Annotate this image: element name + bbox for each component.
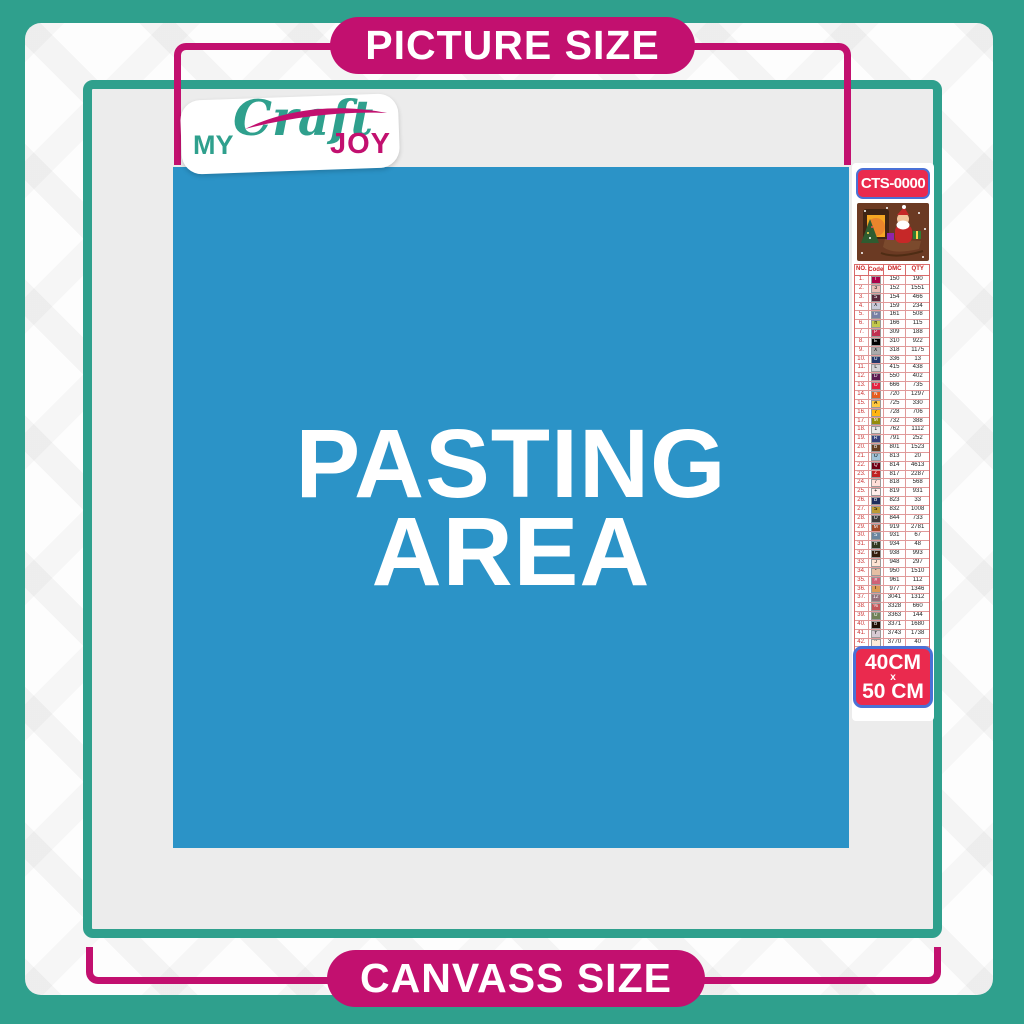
table-cell: 977 bbox=[884, 586, 907, 594]
table-cell: 144 bbox=[906, 612, 929, 620]
table-row: 12.D550402 bbox=[855, 373, 929, 382]
color-swatch: 7 bbox=[871, 409, 881, 417]
table-row: 10.U33613 bbox=[855, 356, 929, 365]
color-swatch: B bbox=[871, 621, 881, 629]
table-cell: 4613 bbox=[906, 462, 929, 470]
table-row: 17.M732388 bbox=[855, 418, 929, 427]
table-cell: 39. bbox=[855, 612, 869, 620]
table-cell: 817 bbox=[884, 471, 907, 479]
table-row: 25.+819931 bbox=[855, 488, 929, 497]
table-cell: 330 bbox=[906, 400, 929, 408]
table-row: 21.O81320 bbox=[855, 453, 929, 462]
table-cell: 30. bbox=[855, 532, 869, 540]
table-cell: 318 bbox=[884, 347, 907, 355]
table-cell: O bbox=[869, 453, 884, 461]
table-cell: A bbox=[869, 400, 884, 408]
table-cell: 7. bbox=[855, 329, 869, 337]
table-cell: 819 bbox=[884, 488, 907, 496]
table-cell: 29. bbox=[855, 524, 869, 532]
table-cell: 15. bbox=[855, 400, 869, 408]
color-swatch: X bbox=[871, 303, 881, 311]
color-swatch: 3 bbox=[871, 285, 881, 293]
table-cell: 568 bbox=[906, 479, 929, 487]
table-cell: 993 bbox=[906, 550, 929, 558]
color-swatch: B bbox=[871, 444, 881, 452]
table-cell: * bbox=[869, 568, 884, 576]
color-swatch: M bbox=[871, 524, 881, 532]
table-cell: 801 bbox=[884, 444, 907, 452]
table-cell: 818 bbox=[884, 479, 907, 487]
color-swatch: L bbox=[871, 364, 881, 372]
table-row: 32.G938993 bbox=[855, 550, 929, 559]
table-row: 22.Q8144613 bbox=[855, 462, 929, 471]
table-cell: % bbox=[869, 603, 884, 611]
table-cell: 3041 bbox=[884, 594, 907, 602]
table-cell: 1680 bbox=[906, 621, 929, 629]
table-cell: 948 bbox=[884, 559, 907, 567]
table-cell: 813 bbox=[884, 453, 907, 461]
color-swatch: H bbox=[871, 541, 881, 549]
color-swatch: + bbox=[871, 488, 881, 496]
table-cell: 814 bbox=[884, 462, 907, 470]
table-cell: 115 bbox=[906, 320, 929, 328]
table-row: 33.J948297 bbox=[855, 559, 929, 568]
table-cell: 466 bbox=[906, 294, 929, 302]
table-row: 7.P309188 bbox=[855, 329, 929, 338]
column-header: QTY bbox=[906, 265, 929, 275]
table-row: 23.Z8172287 bbox=[855, 471, 929, 480]
canvass-size-banner: CANVASS SIZE bbox=[327, 950, 705, 1007]
table-cell: 7 bbox=[869, 479, 884, 487]
color-swatch: S bbox=[871, 532, 881, 540]
table-cell: 190 bbox=[906, 276, 929, 284]
table-cell: S bbox=[869, 506, 884, 514]
pasting-area-label-line2: AREA bbox=[372, 508, 651, 596]
table-row: 31.H93448 bbox=[855, 541, 929, 550]
table-cell: 3371 bbox=[884, 621, 907, 629]
table-cell: 706 bbox=[906, 409, 929, 417]
table-cell: 3 bbox=[869, 285, 884, 293]
color-swatch: R bbox=[871, 435, 881, 443]
table-cell: 32. bbox=[855, 550, 869, 558]
table-cell: 938 bbox=[884, 550, 907, 558]
table-cell: 844 bbox=[884, 515, 907, 523]
table-row: 19.R791252 bbox=[855, 435, 929, 444]
table-cell: Y bbox=[869, 630, 884, 638]
brand-logo: MY Craft JOY bbox=[181, 97, 399, 171]
table-cell: 10. bbox=[855, 356, 869, 364]
table-cell: B bbox=[869, 621, 884, 629]
table-cell: X bbox=[869, 347, 884, 355]
color-swatch: 1 bbox=[871, 426, 881, 434]
product-code-label: CTS-0000 bbox=[861, 175, 925, 192]
table-cell: 823 bbox=[884, 497, 907, 505]
table-cell: 150 bbox=[884, 276, 907, 284]
color-swatch: X bbox=[871, 347, 881, 355]
table-cell: Z bbox=[869, 471, 884, 479]
table-cell: X bbox=[869, 303, 884, 311]
table-cell: 34. bbox=[855, 568, 869, 576]
canvas-size-badge: 40CM x 50 CM bbox=[853, 646, 933, 708]
color-swatch: G bbox=[871, 311, 881, 319]
pasting-area: PASTING AREA bbox=[173, 167, 849, 848]
table-cell: 931 bbox=[906, 488, 929, 496]
table-cell: 919 bbox=[884, 524, 907, 532]
color-swatch: 12 bbox=[871, 594, 881, 602]
table-cell: 12. bbox=[855, 373, 869, 381]
table-row: 24.7818568 bbox=[855, 479, 929, 488]
table-cell: 922 bbox=[906, 338, 929, 346]
table-cell: 4. bbox=[855, 303, 869, 311]
table-cell: 112 bbox=[906, 577, 929, 585]
table-cell: 13. bbox=[855, 382, 869, 390]
table-cell: Q bbox=[869, 462, 884, 470]
table-cell: G bbox=[869, 550, 884, 558]
table-cell: B bbox=[869, 497, 884, 505]
column-header: DMC bbox=[884, 265, 907, 275]
table-cell: 660 bbox=[906, 603, 929, 611]
table-row: 38.%3328660 bbox=[855, 603, 929, 612]
table-cell: 1312 bbox=[906, 594, 929, 602]
table-cell: 1175 bbox=[906, 347, 929, 355]
color-swatch: T bbox=[871, 276, 881, 284]
color-swatch: O bbox=[871, 453, 881, 461]
table-cell: 16. bbox=[855, 409, 869, 417]
table-cell: 19. bbox=[855, 435, 869, 443]
table-cell: 9. bbox=[855, 347, 869, 355]
table-row: 9.X3181175 bbox=[855, 347, 929, 356]
table-cell: 27. bbox=[855, 506, 869, 514]
table-cell: H bbox=[869, 541, 884, 549]
table-row: 4.X159234 bbox=[855, 303, 929, 312]
table-row: 36.T9771346 bbox=[855, 586, 929, 595]
color-swatch: % bbox=[871, 603, 881, 611]
table-cell: 3743 bbox=[884, 630, 907, 638]
size-value-width: 40CM bbox=[865, 653, 921, 673]
color-swatch: Q bbox=[871, 462, 881, 470]
table-cell: 732 bbox=[884, 418, 907, 426]
table-cell: 1297 bbox=[906, 391, 929, 399]
color-swatch: S bbox=[871, 506, 881, 514]
table-cell: 22. bbox=[855, 462, 869, 470]
table-cell: T bbox=[869, 276, 884, 284]
product-template-poster: PASTING AREA PICTURE SIZE CANVASS SIZE M… bbox=[0, 0, 1024, 1024]
table-cell: 13 bbox=[906, 356, 929, 364]
color-swatch: * bbox=[871, 568, 881, 576]
table-cell: 33 bbox=[906, 497, 929, 505]
table-row: 41.Y37431738 bbox=[855, 630, 929, 639]
table-cell: E bbox=[869, 338, 884, 346]
table-cell: 508 bbox=[906, 311, 929, 319]
table-cell: 733 bbox=[906, 515, 929, 523]
color-swatch: O bbox=[871, 515, 881, 523]
table-cell: 24. bbox=[855, 479, 869, 487]
table-cell: 152 bbox=[884, 285, 907, 293]
table-cell: 2. bbox=[855, 285, 869, 293]
table-row: 1.T150190 bbox=[855, 276, 929, 285]
color-swatch: G bbox=[871, 550, 881, 558]
table-cell: B bbox=[869, 444, 884, 452]
table-cell: 1112 bbox=[906, 426, 929, 434]
picture-size-banner-label: PICTURE SIZE bbox=[365, 22, 659, 69]
table-row: 6.h166115 bbox=[855, 320, 929, 329]
table-cell: O bbox=[869, 382, 884, 390]
table-row: 13.O666735 bbox=[855, 382, 929, 391]
color-swatch: A bbox=[871, 400, 881, 408]
table-cell: O bbox=[869, 515, 884, 523]
color-swatch: M bbox=[871, 418, 881, 426]
table-cell: 8. bbox=[855, 338, 869, 346]
table-cell: 12 bbox=[869, 594, 884, 602]
table-cell: 438 bbox=[906, 364, 929, 372]
color-swatch: T bbox=[871, 586, 881, 594]
table-row: 16.7728706 bbox=[855, 409, 929, 418]
table-cell: 1346 bbox=[906, 586, 929, 594]
table-row: 37.1230411312 bbox=[855, 594, 929, 603]
table-cell: 725 bbox=[884, 400, 907, 408]
table-cell: 3363 bbox=[884, 612, 907, 620]
table-row: 26.B82333 bbox=[855, 497, 929, 506]
table-cell: S bbox=[869, 294, 884, 302]
table-cell: 931 bbox=[884, 532, 907, 540]
table-cell: L bbox=[869, 364, 884, 372]
table-cell: 6. bbox=[855, 320, 869, 328]
color-table-body: 1.T1501902.315215513.S1544664.X1592345.G… bbox=[855, 276, 929, 701]
color-swatch: O bbox=[871, 382, 881, 390]
table-cell: 309 bbox=[884, 329, 907, 337]
table-cell: 1 bbox=[869, 426, 884, 434]
table-cell: P bbox=[869, 329, 884, 337]
table-cell: R bbox=[869, 435, 884, 443]
table-cell: + bbox=[869, 488, 884, 496]
table-row: 3.S154466 bbox=[855, 294, 929, 303]
table-cell: 38. bbox=[855, 603, 869, 611]
table-cell: 310 bbox=[884, 338, 907, 346]
table-row: 11.L415438 bbox=[855, 364, 929, 373]
color-table: NO.CodeDMCQTY 1.T1501902.315215513.S1544… bbox=[854, 264, 930, 702]
logo-word-my: MY bbox=[193, 130, 234, 161]
table-cell: 297 bbox=[906, 559, 929, 567]
table-row: 8.E310922 bbox=[855, 338, 929, 347]
table-cell: 18. bbox=[855, 426, 869, 434]
table-cell: 7 bbox=[869, 409, 884, 417]
table-cell: 48 bbox=[906, 541, 929, 549]
table-cell: 11. bbox=[855, 364, 869, 372]
table-cell: 2287 bbox=[906, 471, 929, 479]
table-cell: 31. bbox=[855, 541, 869, 549]
table-cell: 934 bbox=[884, 541, 907, 549]
table-row: 35.#961112 bbox=[855, 577, 929, 586]
table-cell: 20 bbox=[906, 453, 929, 461]
table-cell: 17. bbox=[855, 418, 869, 426]
color-swatch: J bbox=[871, 559, 881, 567]
table-cell: 188 bbox=[906, 329, 929, 337]
table-cell: 5. bbox=[855, 311, 869, 319]
table-cell: 159 bbox=[884, 303, 907, 311]
logo-word-joy: JOY bbox=[330, 128, 391, 161]
color-swatch: P bbox=[871, 329, 881, 337]
table-cell: 37. bbox=[855, 594, 869, 602]
table-row: 5.G161508 bbox=[855, 311, 929, 320]
table-cell: D bbox=[869, 373, 884, 381]
table-cell: 252 bbox=[906, 435, 929, 443]
table-cell: 1. bbox=[855, 276, 869, 284]
table-cell: 67 bbox=[906, 532, 929, 540]
table-cell: U bbox=[869, 612, 884, 620]
color-table-head: NO.CodeDMCQTY bbox=[855, 265, 929, 276]
color-swatch: h bbox=[871, 320, 881, 328]
table-cell: 720 bbox=[884, 391, 907, 399]
table-cell: 40. bbox=[855, 621, 869, 629]
table-cell: T bbox=[869, 586, 884, 594]
color-swatch: Z bbox=[871, 471, 881, 479]
table-cell: S bbox=[869, 532, 884, 540]
picture-size-banner: PICTURE SIZE bbox=[330, 17, 695, 74]
table-cell: U bbox=[869, 356, 884, 364]
table-cell: 33. bbox=[855, 559, 869, 567]
table-row: 34.*9501510 bbox=[855, 568, 929, 577]
table-row: 30.S93167 bbox=[855, 532, 929, 541]
table-row: 40.B33711680 bbox=[855, 621, 929, 630]
table-cell: 550 bbox=[884, 373, 907, 381]
color-swatch: D bbox=[871, 373, 881, 381]
table-cell: 336 bbox=[884, 356, 907, 364]
table-row: 2.31521551 bbox=[855, 285, 929, 294]
table-cell: 832 bbox=[884, 506, 907, 514]
table-cell: h bbox=[869, 320, 884, 328]
table-cell: 2781 bbox=[906, 524, 929, 532]
color-swatch: U bbox=[871, 612, 881, 620]
table-cell: 791 bbox=[884, 435, 907, 443]
table-cell: 762 bbox=[884, 426, 907, 434]
canvass-size-banner-label: CANVASS SIZE bbox=[360, 955, 672, 1002]
table-cell: 26. bbox=[855, 497, 869, 505]
table-cell: J bbox=[869, 559, 884, 567]
table-cell: 402 bbox=[906, 373, 929, 381]
table-row: 20.B8011523 bbox=[855, 444, 929, 453]
table-cell: 25. bbox=[855, 488, 869, 496]
table-cell: 1523 bbox=[906, 444, 929, 452]
table-cell: 3. bbox=[855, 294, 869, 302]
color-swatch: 7 bbox=[871, 479, 881, 487]
color-swatch: # bbox=[871, 577, 881, 585]
table-row: 39.U3363144 bbox=[855, 612, 929, 621]
table-cell: 961 bbox=[884, 577, 907, 585]
table-row: 29.M9192781 bbox=[855, 524, 929, 533]
table-cell: 1510 bbox=[906, 568, 929, 576]
table-cell: 21. bbox=[855, 453, 869, 461]
table-row: 14.N7201297 bbox=[855, 391, 929, 400]
table-cell: 3328 bbox=[884, 603, 907, 611]
product-code-badge: CTS-0000 bbox=[856, 168, 930, 199]
column-header: NO. bbox=[855, 265, 869, 275]
color-swatch: Y bbox=[871, 630, 881, 638]
column-header: Code bbox=[869, 265, 884, 275]
table-row: 28.O844733 bbox=[855, 515, 929, 524]
table-cell: 1008 bbox=[906, 506, 929, 514]
table-cell: M bbox=[869, 418, 884, 426]
table-row: 15.A725330 bbox=[855, 400, 929, 409]
table-cell: 388 bbox=[906, 418, 929, 426]
product-preview-image bbox=[857, 203, 929, 261]
table-cell: 234 bbox=[906, 303, 929, 311]
table-cell: M bbox=[869, 524, 884, 532]
table-cell: # bbox=[869, 577, 884, 585]
color-swatch: B bbox=[871, 497, 881, 505]
color-swatch: N bbox=[871, 391, 881, 399]
table-cell: 14. bbox=[855, 391, 869, 399]
table-cell: 666 bbox=[884, 382, 907, 390]
pasting-area-label-line1: PASTING bbox=[296, 420, 727, 508]
table-cell: 1738 bbox=[906, 630, 929, 638]
table-cell: N bbox=[869, 391, 884, 399]
table-cell: 1551 bbox=[906, 285, 929, 293]
table-cell: 35. bbox=[855, 577, 869, 585]
table-cell: 728 bbox=[884, 409, 907, 417]
table-row: 27.S8321008 bbox=[855, 506, 929, 515]
color-swatch: S bbox=[871, 294, 881, 302]
table-cell: 154 bbox=[884, 294, 907, 302]
color-swatch: E bbox=[871, 338, 881, 346]
table-cell: 161 bbox=[884, 311, 907, 319]
table-cell: 20. bbox=[855, 444, 869, 452]
table-cell: 415 bbox=[884, 364, 907, 372]
table-cell: 950 bbox=[884, 568, 907, 576]
santa-scene-icon bbox=[857, 203, 929, 261]
table-cell: 36. bbox=[855, 586, 869, 594]
table-cell: G bbox=[869, 311, 884, 319]
table-cell: 41. bbox=[855, 630, 869, 638]
table-cell: 28. bbox=[855, 515, 869, 523]
color-chart-sidebar: CTS-0000 bbox=[852, 163, 934, 721]
table-cell: 735 bbox=[906, 382, 929, 390]
table-row: 18.17621112 bbox=[855, 426, 929, 435]
table-cell: 166 bbox=[884, 320, 907, 328]
color-swatch: U bbox=[871, 356, 881, 364]
table-cell: 23. bbox=[855, 471, 869, 479]
size-value-height: 50 CM bbox=[862, 682, 924, 702]
